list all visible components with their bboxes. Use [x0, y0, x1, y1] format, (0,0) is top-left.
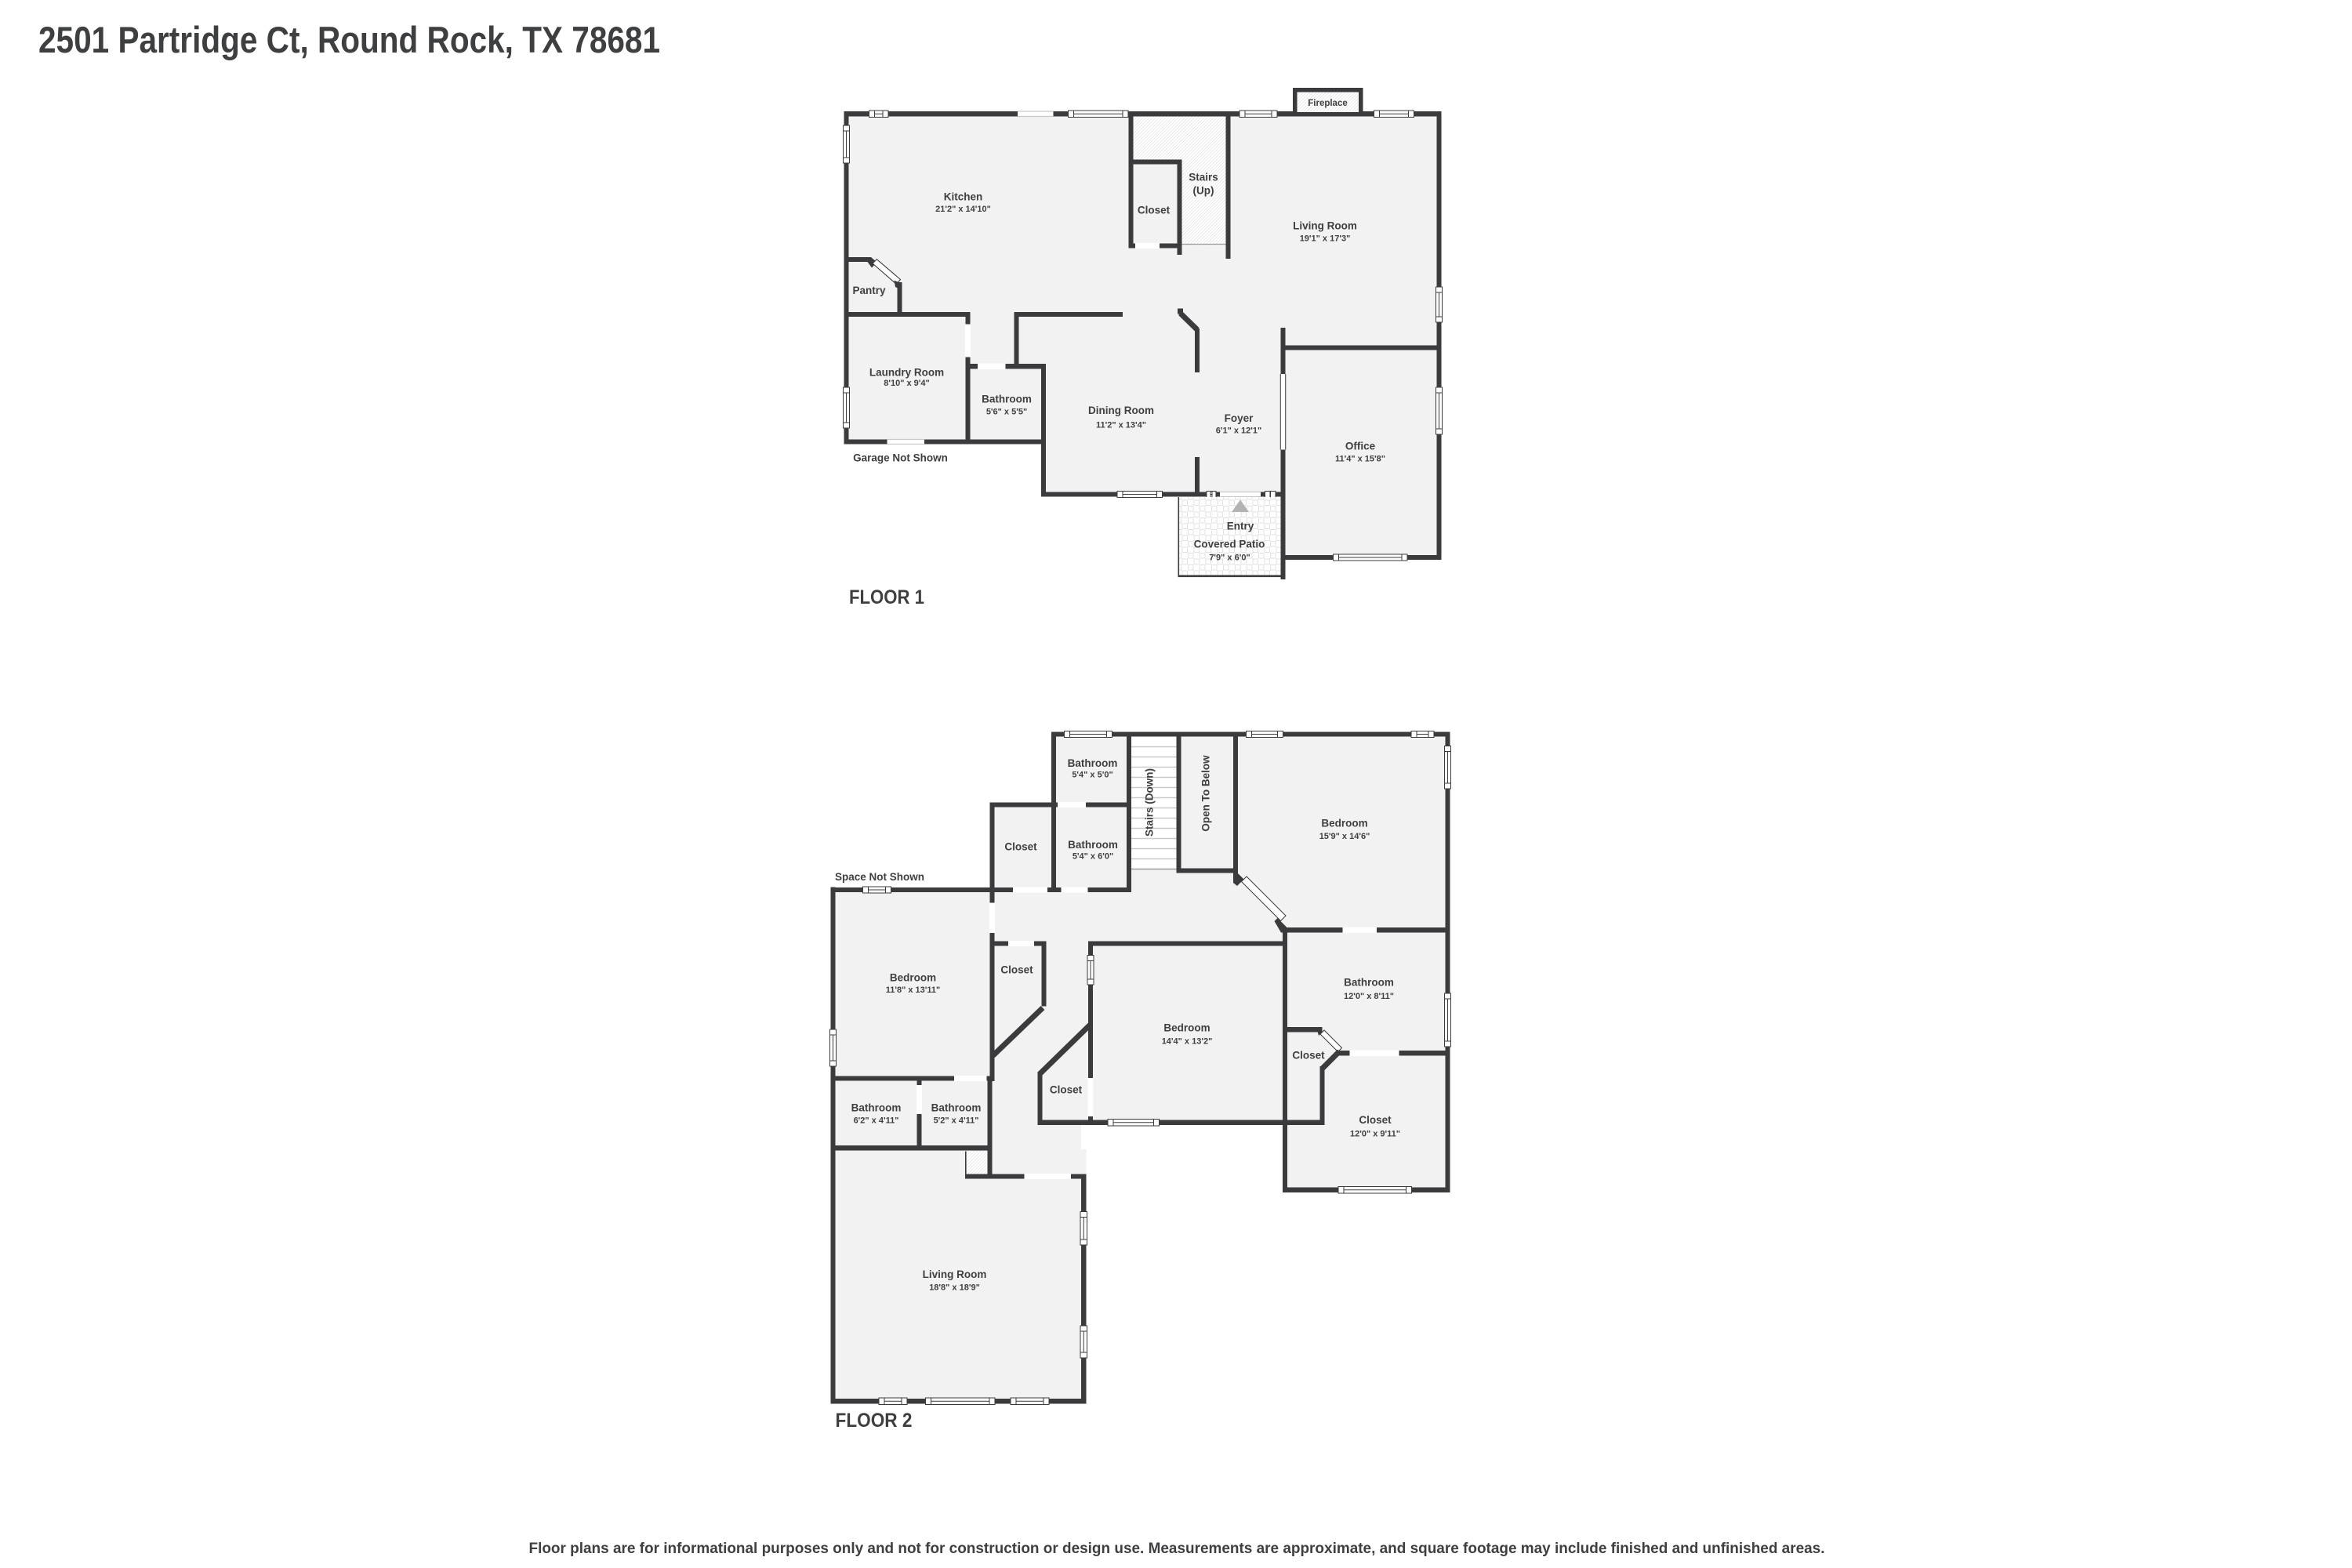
svg-text:FLOOR 2: FLOOR 2: [836, 1410, 913, 1432]
svg-text:Office: Office: [1345, 441, 1376, 452]
svg-text:Bedroom: Bedroom: [890, 972, 936, 984]
svg-text:Bathroom: Bathroom: [1068, 757, 1118, 769]
svg-text:Garage Not Shown: Garage Not Shown: [853, 452, 948, 464]
svg-text:Space Not Shown: Space Not Shown: [835, 871, 924, 883]
svg-text:5'4" x 6'0": 5'4" x 6'0": [1073, 852, 1113, 862]
svg-text:Open To Below: Open To Below: [1200, 755, 1212, 832]
svg-text:FLOOR 1: FLOOR 1: [849, 586, 924, 608]
svg-text:7'9" x 6'0": 7'9" x 6'0": [1209, 554, 1250, 563]
svg-text:2501 Partridge Ct, Round Rock,: 2501 Partridge Ct, Round Rock, TX 78681: [38, 19, 660, 60]
svg-text:15'9" x 14'6": 15'9" x 14'6": [1319, 832, 1370, 841]
svg-text:Closet: Closet: [1000, 964, 1033, 976]
svg-text:Stairs: Stairs: [1189, 172, 1218, 183]
svg-text:5'2" x 4'11": 5'2" x 4'11": [934, 1116, 979, 1126]
svg-text:12'0" x 8'11": 12'0" x 8'11": [1344, 992, 1394, 1001]
svg-text:Covered Patio: Covered Patio: [1194, 539, 1265, 550]
svg-text:Bedroom: Bedroom: [1163, 1022, 1210, 1034]
svg-text:Bathroom: Bathroom: [982, 394, 1032, 405]
svg-text:8'10" x 9'4": 8'10" x 9'4": [884, 379, 929, 388]
svg-text:5'4" x 5'0": 5'4" x 5'0": [1072, 771, 1112, 780]
svg-text:Living Room: Living Room: [923, 1269, 987, 1280]
svg-text:Closet: Closet: [1050, 1084, 1083, 1096]
svg-text:Bathroom: Bathroom: [1068, 839, 1118, 851]
svg-text:6'1" x 12'1": 6'1" x 12'1": [1216, 426, 1261, 436]
svg-text:Closet: Closet: [1004, 841, 1037, 853]
svg-text:Fireplace: Fireplace: [1308, 99, 1348, 108]
svg-text:Foyer: Foyer: [1225, 412, 1254, 424]
svg-text:Bathroom: Bathroom: [851, 1102, 902, 1114]
svg-text:11'8" x 13'11": 11'8" x 13'11": [886, 985, 941, 995]
svg-text:Floor plans are for informatio: Floor plans are for informational purpos…: [529, 1540, 1825, 1557]
svg-text:11'2" x 13'4": 11'2" x 13'4": [1096, 421, 1146, 430]
svg-text:Bathroom: Bathroom: [1344, 977, 1394, 989]
svg-text:Bathroom: Bathroom: [931, 1102, 982, 1114]
svg-text:Pantry: Pantry: [852, 285, 886, 296]
svg-text:Entry: Entry: [1227, 521, 1254, 532]
svg-text:Closet: Closet: [1359, 1114, 1392, 1126]
svg-text:Kitchen: Kitchen: [944, 191, 983, 203]
svg-text:12'0" x 9'11": 12'0" x 9'11": [1350, 1130, 1400, 1139]
svg-text:18'8" x 18'9": 18'8" x 18'9": [929, 1283, 980, 1293]
svg-text:(Up): (Up): [1193, 185, 1214, 197]
svg-text:Closet: Closet: [1138, 205, 1171, 216]
svg-text:Stairs (Down): Stairs (Down): [1144, 768, 1156, 837]
svg-text:19'1" x 17'3": 19'1" x 17'3": [1300, 234, 1351, 244]
svg-text:21'2" x 14'10": 21'2" x 14'10": [935, 205, 991, 214]
svg-text:Bedroom: Bedroom: [1321, 818, 1367, 829]
svg-text:Dining Room: Dining Room: [1088, 405, 1154, 416]
svg-text:11'4" x 15'8": 11'4" x 15'8": [1335, 455, 1385, 464]
svg-text:Living Room: Living Room: [1293, 220, 1357, 232]
svg-text:6'2" x 4'11": 6'2" x 4'11": [854, 1116, 899, 1126]
svg-text:5'6" x 5'5": 5'6" x 5'5": [986, 408, 1027, 417]
svg-text:Closet: Closet: [1292, 1050, 1325, 1062]
svg-text:14'4" x 13'2": 14'4" x 13'2": [1162, 1037, 1213, 1047]
svg-text:Laundry Room: Laundry Room: [869, 367, 944, 379]
